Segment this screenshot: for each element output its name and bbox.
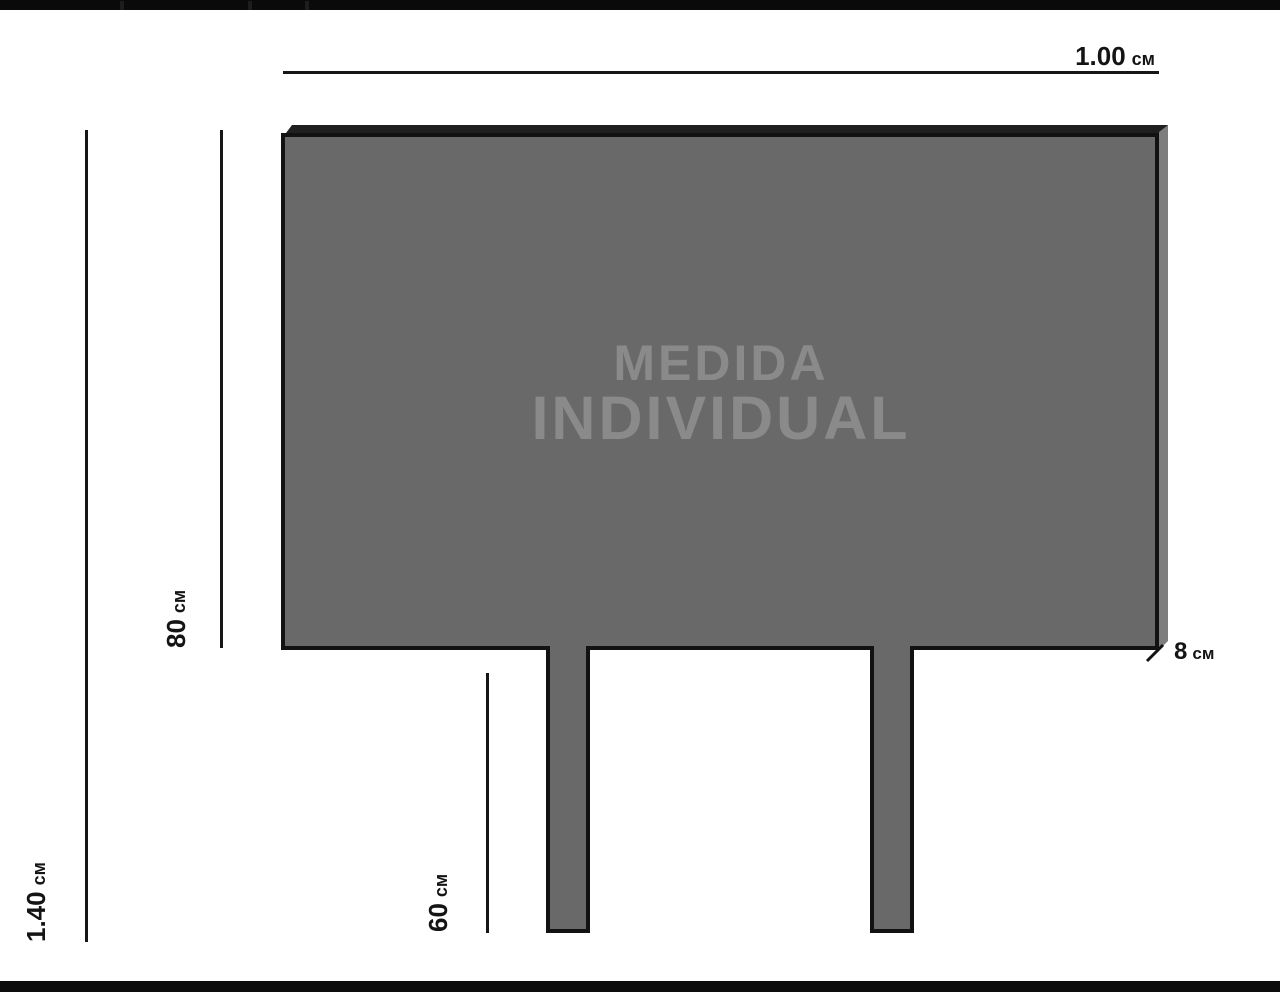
dim-label-leg-height: 60см [424,874,452,932]
dim-line-panel-height [220,130,223,648]
dim-unit: см [169,590,189,613]
dim-label-total-width: 1.00см [955,41,1155,72]
dim-unit: см [431,874,451,897]
dim-label-panel-height: 80см [162,590,190,648]
dim-label-total-height: 1.40см [22,862,50,942]
dim-unit: см [29,862,49,885]
dim-value: 60 [423,903,453,932]
watermark: MEDIDA INDIVIDUAL [285,137,1157,648]
watermark-line2: INDIVIDUAL [531,390,910,448]
dim-unit: см [1192,644,1214,663]
dim-unit: см [1132,49,1155,69]
dim-value: 8 [1174,638,1187,665]
dim-value: 1.00 [1075,41,1126,71]
dim-line-total-height [85,130,88,942]
dim-line-leg-height [486,673,489,933]
panel-side-face [1159,125,1168,650]
dim-value: 1.40 [21,891,51,942]
dim-label-depth: 8см [1174,638,1214,666]
bottom-black-bar [0,981,1280,992]
watermark-line1: MEDIDA [613,337,828,390]
diagram-canvas: MEDIDA INDIVIDUAL 1.00см 80см 1.40см 60с… [0,0,1280,992]
dim-value: 80 [161,619,191,648]
